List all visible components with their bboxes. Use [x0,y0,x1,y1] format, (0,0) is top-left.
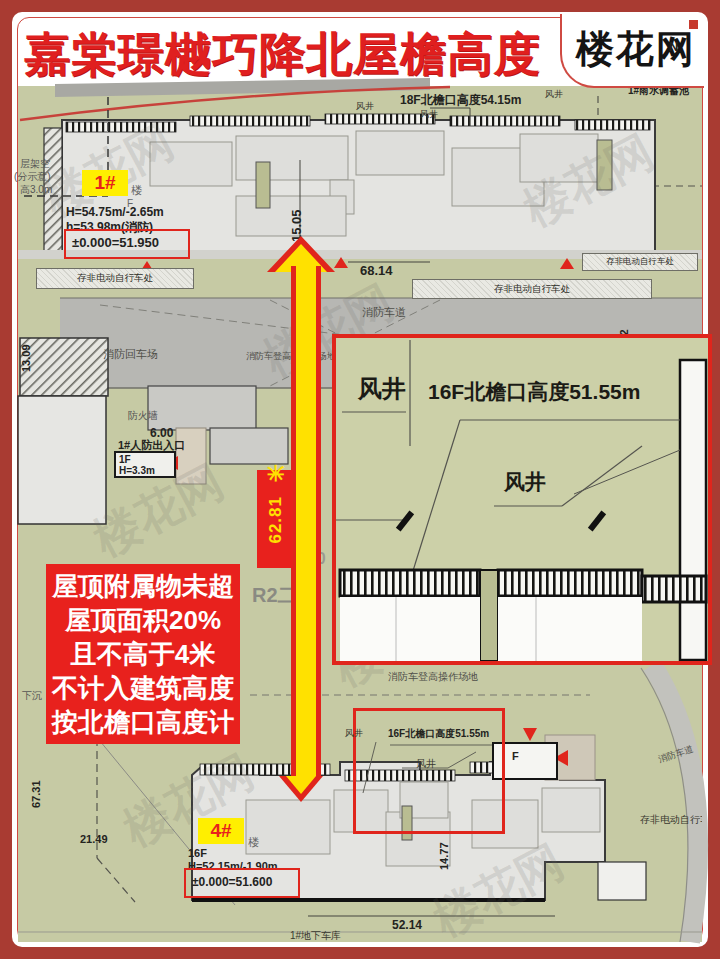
building-4-level-highlight [184,868,300,898]
bike-parking-label: 存非电动自行车处 [582,253,698,271]
garage-label: 1#地下车库 [290,930,341,941]
civil-defense-floor: 1F [119,454,171,465]
logo-box: 楼花网 [560,14,704,88]
logo-seal-icon [689,20,698,29]
dim-68-14: 68.14 [360,264,393,278]
dim-15-05: 15.05 [290,158,304,242]
page: 楼花网 楼花网 楼花网 楼花网 楼花网 楼花网 楼花网 楼花网 1#雨水调蓄池 … [0,0,720,959]
stilt-note: 层架空 [20,158,50,169]
detail-highlight-box [353,708,505,834]
entrance-floor-label: F [512,750,519,762]
shaft-label: 风井 [545,90,563,100]
detail-shaft-label: 风井 [416,758,436,769]
inset-shaft-label: 风井 [358,376,406,402]
building-1-height: H=54.75m/-2.65m [66,206,164,219]
building-4-name-suffix: 楼 [248,836,259,848]
inset-shaft-label: 风井 [504,470,546,493]
fire-lane-label: 消防车道 [362,306,406,318]
building-4-floors: 16F [188,847,207,859]
page-title: 嘉棠璟樾巧降北屋檐高度 [24,24,541,86]
dim-13-09: 13.09 [20,308,32,372]
detail-eave-label: 16F北檐口高度51.55m [388,728,489,739]
building-1-level-highlight [64,229,190,259]
note-line: 按北檐口高度计 [52,705,234,739]
arrow-measurement-label: 62.81米 [257,470,293,568]
measurement-arrow-shaft [291,266,321,778]
dim-67-31: 67.31 [30,738,42,808]
note-line: 不计入建筑高度 [52,671,234,705]
building-1-badge: 1# [82,170,128,196]
roof-note-block: 屋顶附属物未超 屋顶面积20% 且不高于4米 不计入建筑高度 按北檐口高度计 [46,564,240,744]
bike-parking-label: 存非电动自行车处 [36,268,194,289]
inset-eave-label: 16F北檐口高度51.55m [428,380,640,403]
stilt-note: 高3.0m [20,184,52,195]
fire-turnaround-label: 消防回车场 [103,348,158,360]
shaft-label: 风井 [356,102,374,112]
note-line: 屋顶面积20% [65,603,221,637]
firewall-label: 防火墙 [128,410,158,421]
compass-n-label: N [669,40,678,54]
building-4-badge: 4# [198,818,244,844]
stilt-note: (分示意) [14,171,51,182]
arrow-head-bottom-fill [286,776,316,794]
fire-lane-label: 消防车道 [657,745,694,766]
building-1-name-suffix: 楼 [131,184,142,196]
shaft-label: 风井 [420,110,438,120]
note-line: 屋顶附属物未超 [52,569,234,603]
sunken-label: 下沉 [22,690,42,701]
bike-parking-label: 存非电动自行车处 [412,279,652,299]
civil-defense-title: 1#人防出入口 [118,439,185,451]
fire-platform-label: 消防车登高操作场地 [388,671,478,682]
detail-shaft-label: 风井 [345,729,363,739]
note-line: 且不高于4米 [71,637,215,671]
dim-52-14: 52.14 [392,919,422,932]
civil-defense-box: 1F H=3.3m [114,451,176,478]
detail-inset: 风井 16F北檐口高度51.55m 风井 [332,334,712,665]
bike-parking-label: 存非电动自行车处 [640,814,702,825]
north-eave-18f-label: 18F北檐口高度54.15m [400,94,521,107]
civil-defense-height: H=3.3m [119,465,171,476]
dim-21-49: 21.49 [80,833,108,845]
